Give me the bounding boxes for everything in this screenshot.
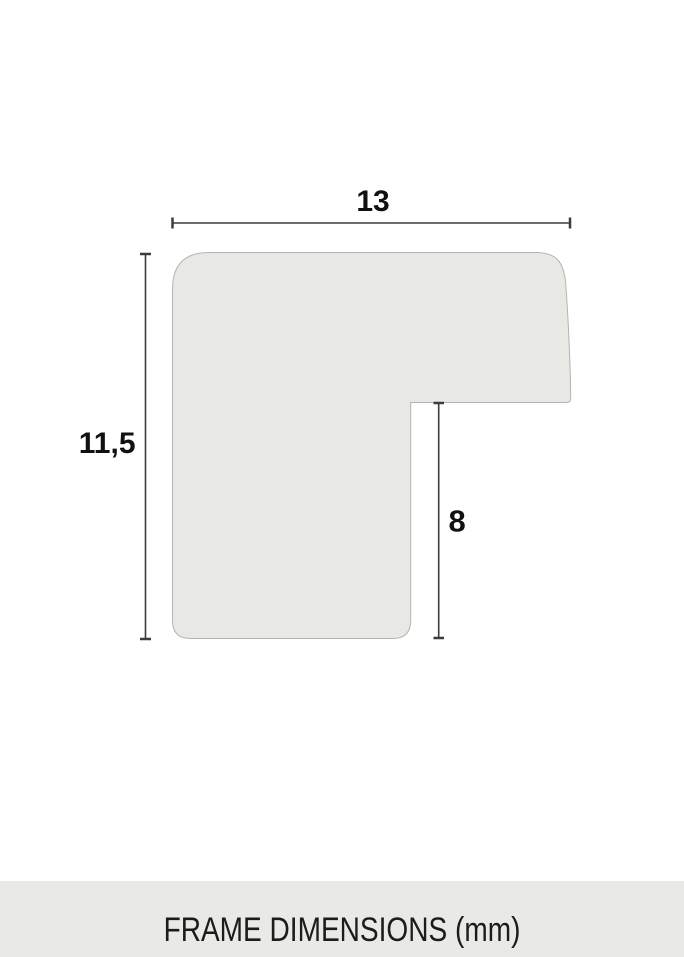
svg-text:11,5: 11,5	[79, 427, 136, 460]
svg-text:8: 8	[449, 504, 466, 539]
svg-text:13: 13	[356, 185, 389, 218]
